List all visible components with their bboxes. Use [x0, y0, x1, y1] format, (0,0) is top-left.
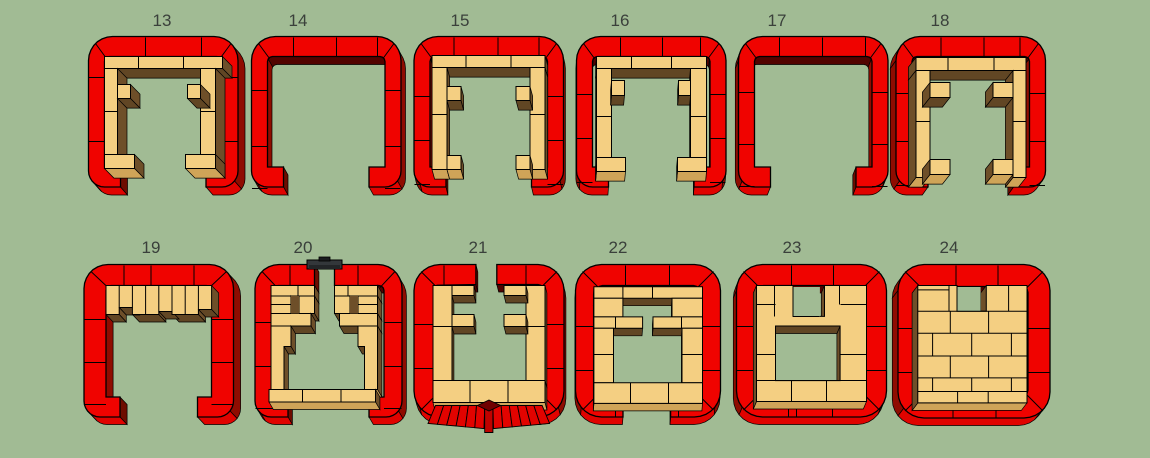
svg-text:16: 16	[611, 11, 630, 30]
svg-text:20: 20	[294, 238, 313, 257]
svg-text:17: 17	[768, 11, 787, 30]
svg-text:18: 18	[931, 11, 950, 30]
svg-text:24: 24	[940, 238, 959, 257]
svg-text:23: 23	[783, 238, 802, 257]
svg-text:15: 15	[451, 11, 470, 30]
svg-text:22: 22	[609, 238, 628, 257]
svg-text:14: 14	[289, 11, 308, 30]
svg-text:19: 19	[142, 238, 161, 257]
svg-text:21: 21	[469, 238, 488, 257]
svg-text:13: 13	[153, 11, 172, 30]
